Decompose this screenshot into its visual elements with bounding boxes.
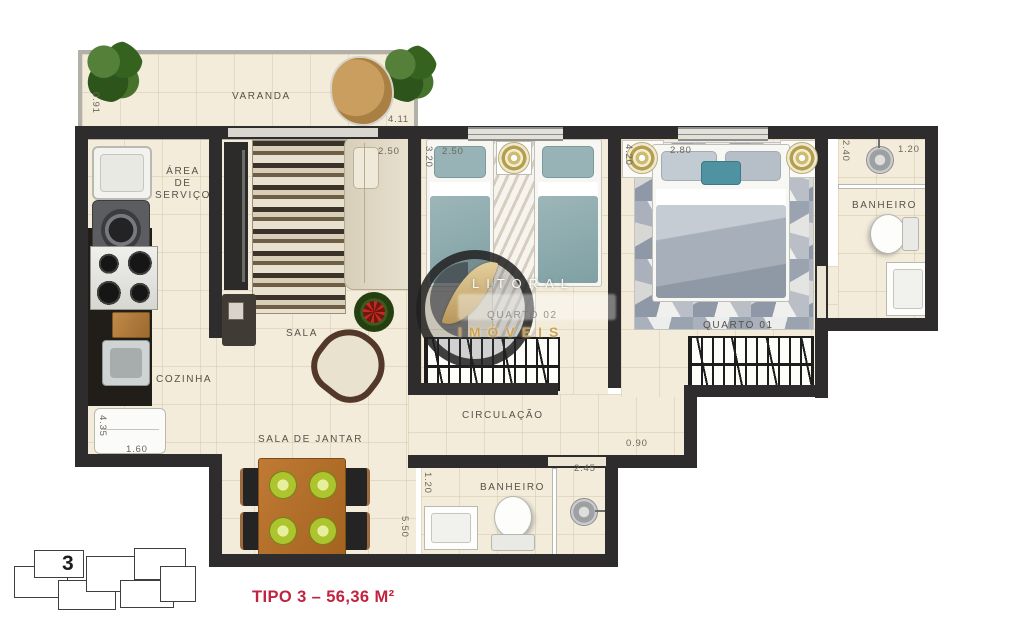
room-label-banheiro-suite: BANHEIRO — [852, 200, 917, 212]
room-label-varanda: VARANDA — [232, 91, 291, 103]
shower-icon — [570, 498, 598, 526]
sofa — [344, 136, 418, 290]
dim-varanda-depth: 0.91 — [90, 92, 101, 114]
flower-plant-icon — [354, 292, 394, 332]
dim-banheiro-social-width: 2.45 — [574, 463, 596, 474]
keyplan-outline — [160, 566, 196, 602]
dim-quarto02-depth: 3.20 — [423, 146, 434, 168]
window-quarto01 — [678, 127, 768, 141]
shower-arm — [878, 138, 880, 148]
single-bed — [534, 139, 602, 287]
wall-sala-quarto02 — [408, 138, 421, 395]
shower-glass — [552, 468, 557, 556]
dim-jantar-depth: 5.50 — [399, 516, 410, 538]
dim-varanda-width: 4.11 — [388, 114, 409, 125]
wall-jantar-left — [209, 454, 222, 567]
dim-banheiro-suite-width: 1.20 — [898, 144, 920, 155]
dining-chair — [342, 512, 370, 550]
medallion-icon — [786, 142, 818, 174]
room-label-sala: SALA — [286, 328, 318, 340]
plate-icon — [309, 517, 337, 545]
window-quarto02 — [468, 127, 563, 141]
toilet-icon — [870, 214, 922, 254]
dining-chair — [342, 468, 370, 506]
watermark-brand-blur — [458, 294, 616, 320]
shower-glass — [838, 184, 927, 189]
wall-left — [75, 126, 88, 467]
wardrobe-quarto01 — [688, 336, 814, 388]
keyplan-unit-number: 3 — [62, 552, 74, 576]
room-label-cozinha: COZINHA — [156, 374, 212, 386]
tv-panel — [224, 142, 248, 290]
dim-quarto01-depth: 4.20 — [623, 144, 634, 166]
door-banheiro-suite — [817, 266, 826, 318]
plan-title: TIPO 3 – 56,36 M² — [252, 588, 395, 607]
room-label-banheiro-social: BANHEIRO — [480, 482, 545, 494]
lounge-chair — [330, 56, 394, 126]
wall-banheiro-suite-bottom — [815, 318, 938, 331]
bathroom-sink-icon — [886, 262, 930, 316]
plate-icon — [269, 517, 297, 545]
wall-nook-bottom — [608, 455, 697, 468]
dim-cozinha-depth: 4.35 — [97, 415, 108, 437]
wall-right — [925, 126, 938, 331]
plate-icon — [309, 471, 337, 499]
room-label-circulacao: CIRCULAÇÃO — [462, 410, 544, 422]
watermark-text-bottom: IMÓVEIS — [458, 324, 565, 340]
plate-icon — [269, 471, 297, 499]
wall-bottom — [209, 554, 618, 567]
medallion-icon — [498, 142, 530, 174]
double-bed — [652, 144, 790, 302]
dim-circulacao-width: 0.90 — [626, 438, 648, 449]
wall-cozinha-bottom — [75, 454, 222, 467]
room-label-area-servico: ÁREA DE SERVIÇO — [155, 166, 211, 202]
wall-quarto01-banheiro — [815, 126, 828, 398]
wall-quarto02-bottom — [408, 383, 558, 395]
watermark-text-top: LITORAL — [472, 276, 575, 291]
dim-sala-width: 2.50 — [378, 146, 400, 157]
room-label-quarto01: QUARTO 01 — [703, 320, 774, 332]
laundry-tub-icon — [92, 146, 152, 200]
wall-banheiro-social-right — [605, 455, 618, 567]
kitchen-sink-icon — [102, 340, 150, 386]
rug-sala — [252, 140, 346, 314]
toilet-icon — [494, 496, 534, 552]
stove-icon — [90, 246, 158, 310]
dim-banheiro-suite-depth: 2.40 — [840, 140, 851, 162]
shower-arm — [595, 510, 605, 512]
dim-quarto02-width: 2.50 — [442, 146, 464, 157]
floor-plan: VARANDA 0.91 4.11 ÁREA DE SERVIÇO COZINH… — [0, 0, 1024, 617]
dining-table — [258, 458, 346, 558]
cutting-board-icon — [112, 312, 150, 338]
wall-quarto01-bottom — [690, 385, 828, 397]
bathroom-sink-icon — [424, 506, 478, 550]
dim-cozinha-width: 1.60 — [126, 444, 148, 455]
sliding-door-varanda — [228, 128, 378, 137]
keyplan-outline — [34, 550, 84, 578]
wall-quarto02-quarto01 — [608, 138, 621, 388]
console-table — [222, 294, 256, 346]
room-label-sala-jantar: SALA DE JANTAR — [258, 434, 363, 446]
dim-banheiro-social-depth: 1.20 — [422, 472, 433, 494]
shower-icon — [866, 146, 894, 174]
dim-quarto01-width: 2.80 — [670, 145, 692, 156]
